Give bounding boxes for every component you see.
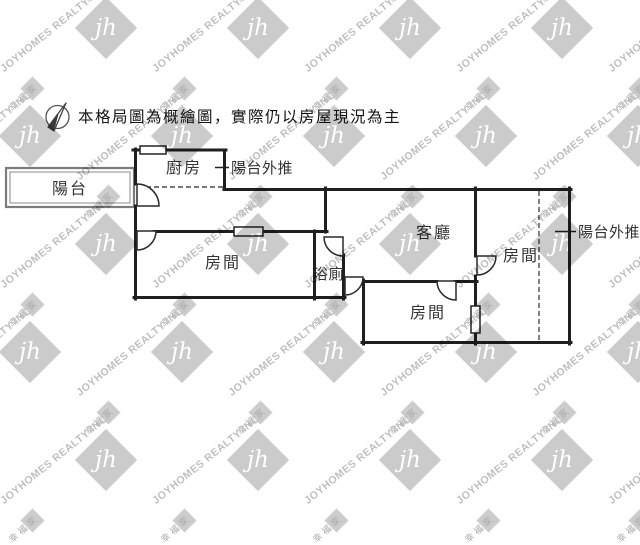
watermark-brand-name: 幸福家 xyxy=(614,512,640,545)
leader-lines xyxy=(215,168,576,232)
window-room-bottom xyxy=(471,306,480,333)
watermark-logo-monogram: jh xyxy=(551,447,573,473)
label-living-room: 客廳 xyxy=(416,223,452,242)
watermark-logo-monogram: jh xyxy=(399,447,421,473)
disclaimer-text: 本格局圖為概繪圖，實際仍以房屋現況為主 xyxy=(78,107,401,126)
watermark-logo-monogram: jh xyxy=(95,447,117,473)
label-kitchen: 廚房 xyxy=(166,158,202,177)
label-room-right: 房間 xyxy=(503,247,539,265)
floor-plan-drawing: 本格局圖為概繪圖，實際仍以房屋現況為主 xyxy=(0,0,640,448)
watermark-small-diamond xyxy=(172,508,196,532)
label-balcony-pushout-top: 陽台外推 xyxy=(231,160,293,177)
watermark-small-diamond xyxy=(476,508,500,532)
watermark-brand-name: 幸福家 xyxy=(310,512,345,545)
door-arc-room-left xyxy=(137,231,156,250)
label-balcony-pushout-right: 陽台外推 xyxy=(578,224,640,241)
door-arc-room-bottom xyxy=(437,281,456,300)
walls xyxy=(133,149,571,344)
watermark-brand-name: 幸福家 xyxy=(158,512,193,545)
door-arc-bathroom xyxy=(324,237,343,256)
watermark-small-diamond xyxy=(20,508,44,532)
door-arc-passage xyxy=(345,277,363,295)
window-kitchen xyxy=(140,146,166,154)
watermark-small-diamond xyxy=(324,508,348,532)
window-room-left xyxy=(234,227,263,236)
compass-icon xyxy=(46,103,69,131)
watermark-brand-name: 幸福家 xyxy=(462,512,497,545)
label-room-bottom: 房間 xyxy=(410,304,446,322)
watermark-brand-name: 幸福家 xyxy=(6,512,41,545)
label-bathroom: 浴廁 xyxy=(313,265,344,283)
door-arc-room-right xyxy=(477,256,496,275)
label-balcony: 陽台 xyxy=(52,180,88,198)
label-room-left: 房間 xyxy=(205,254,241,272)
floor-plan-page: 本格局圖為概繪圖，實際仍以房屋現況為主 xyxy=(0,0,640,448)
watermark-logo-monogram: jh xyxy=(247,447,269,473)
watermark-small-diamond xyxy=(628,508,640,532)
